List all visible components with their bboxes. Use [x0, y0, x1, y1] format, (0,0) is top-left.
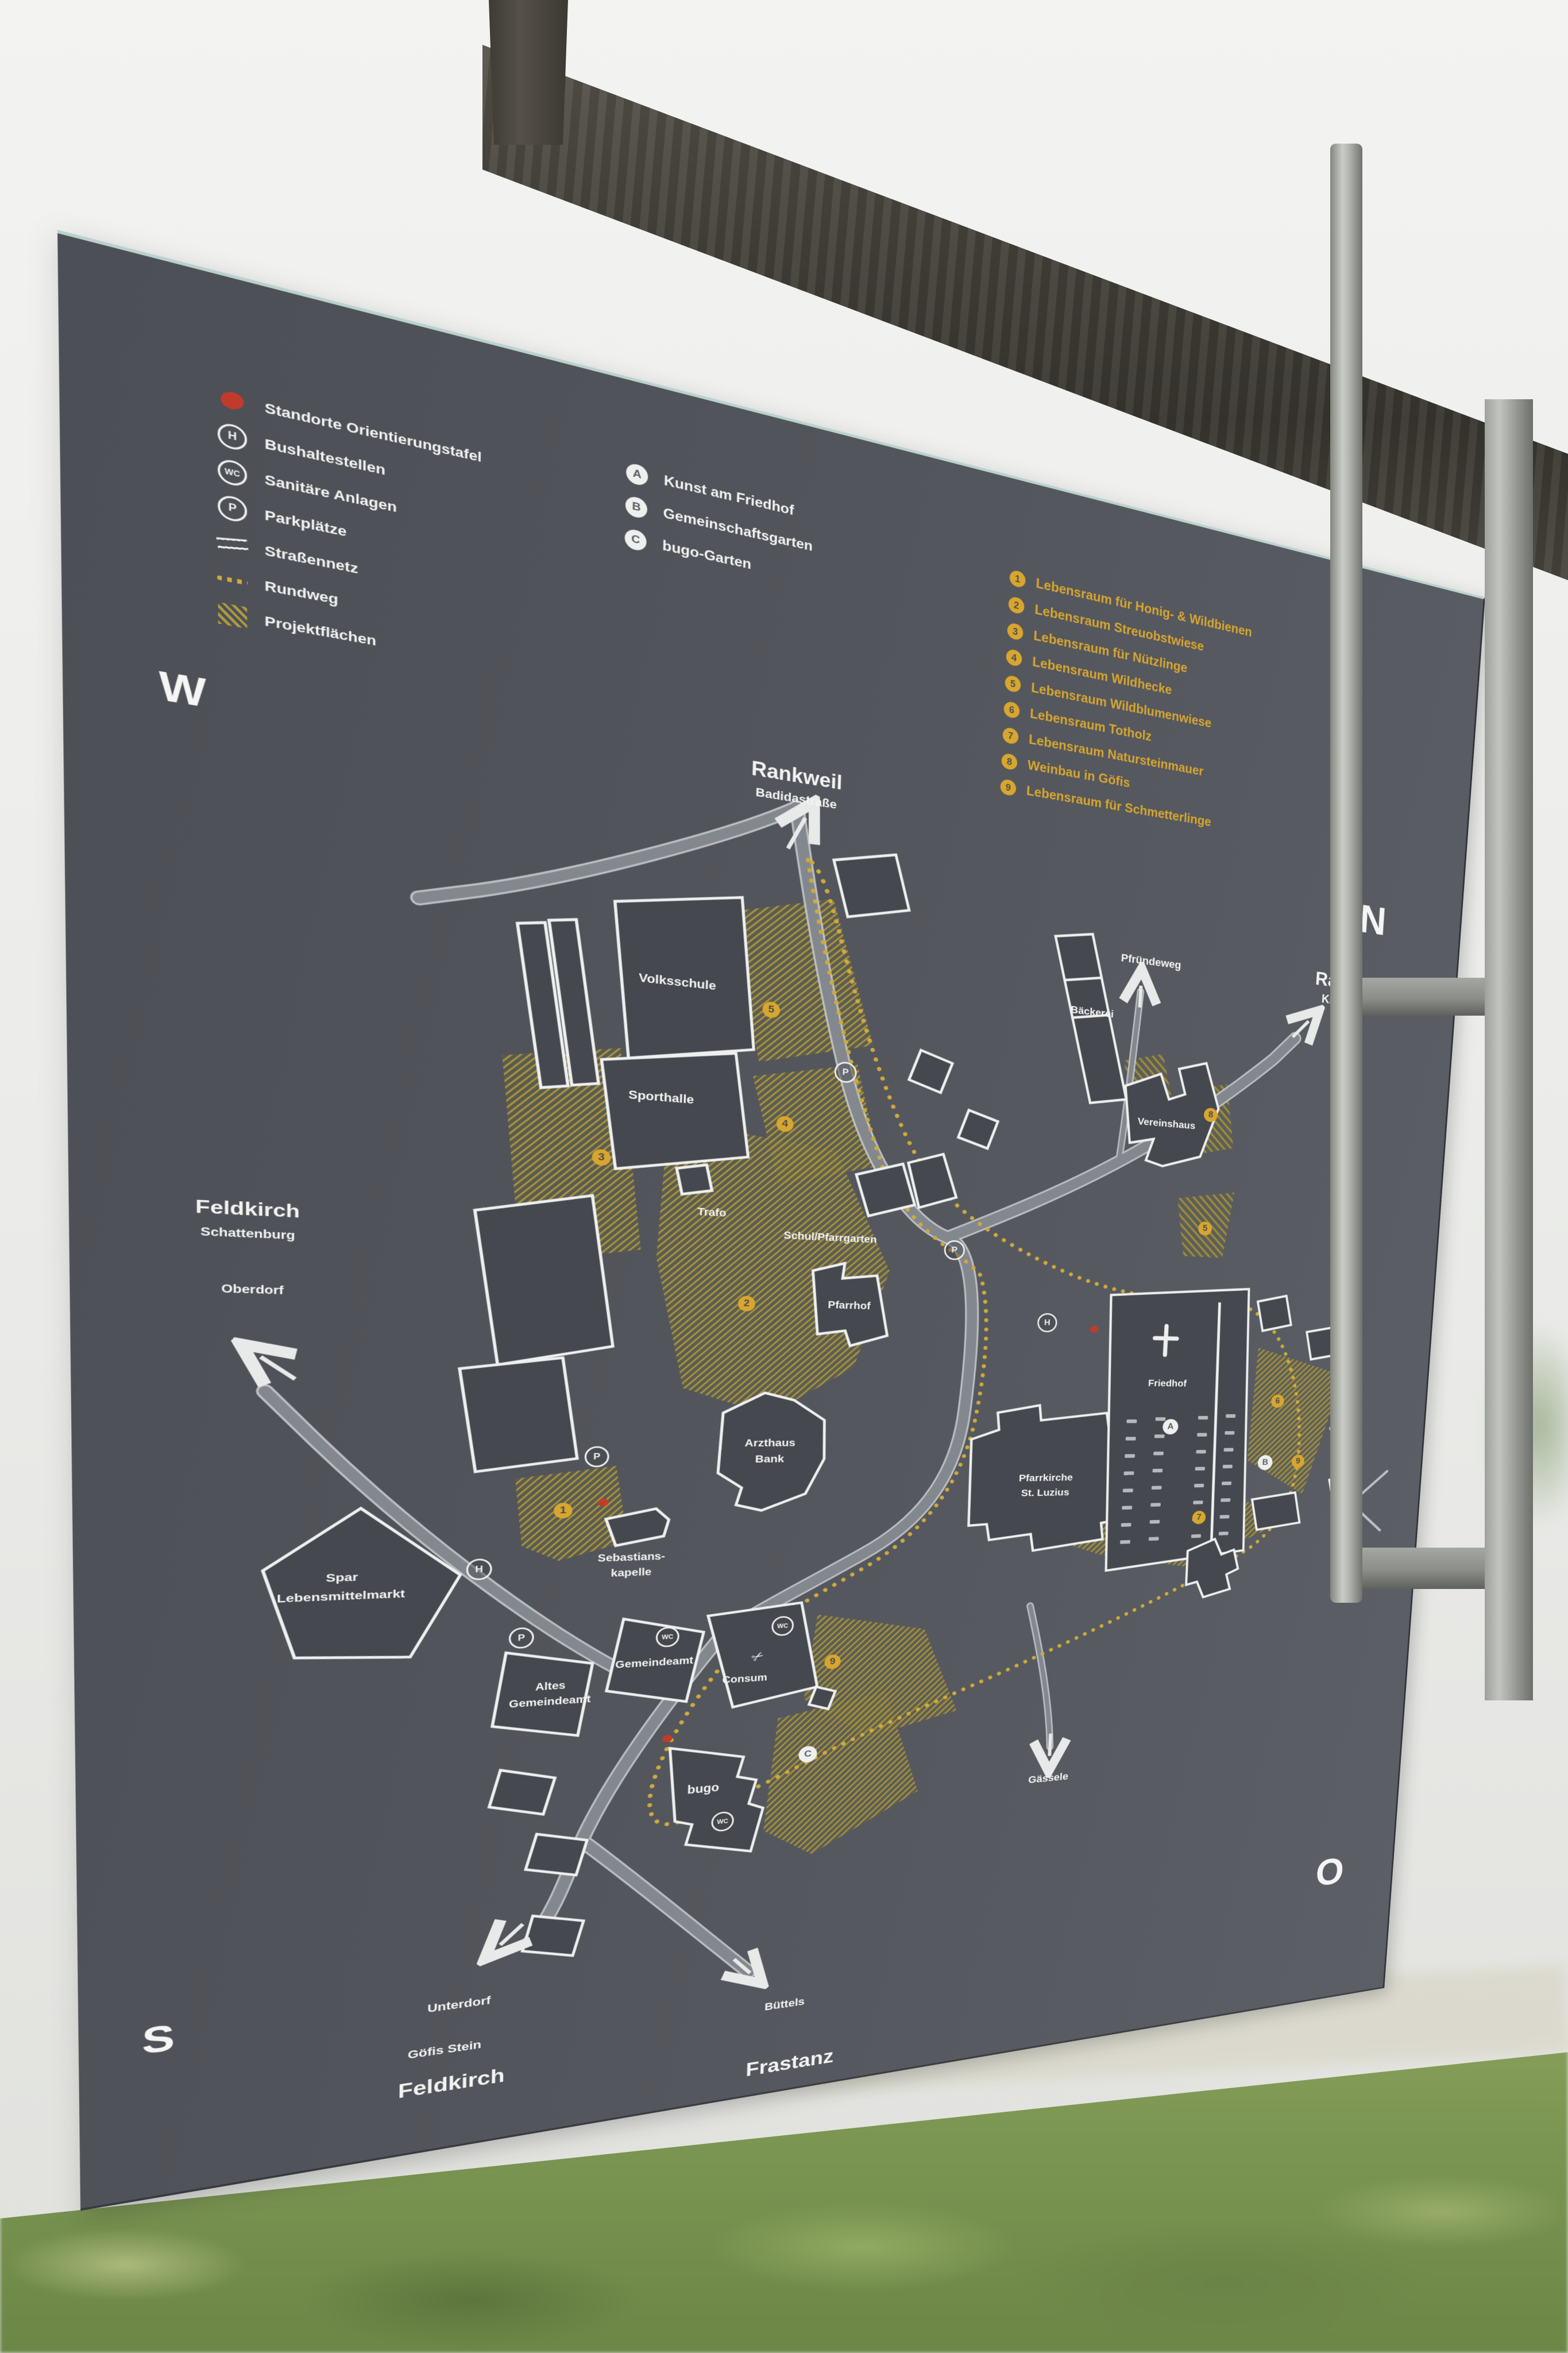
- label-arzthaus: Arzthaus: [744, 1437, 795, 1449]
- project-number-icon: 2: [1008, 596, 1025, 615]
- dest-oberdorf: Oberdorf: [221, 1282, 284, 1297]
- wc-icon: WC: [218, 457, 247, 488]
- label-arzthaus-bank: Bank: [755, 1453, 785, 1465]
- label-spar-1: Spar: [326, 1571, 358, 1586]
- legend-label: Rundweg: [265, 578, 338, 608]
- label-kirche-2: St. Luzius: [1021, 1487, 1069, 1499]
- project-number-icon: 9: [1000, 778, 1016, 797]
- project-number-icon: 6: [1003, 701, 1020, 719]
- arzthaus-building: [717, 1392, 827, 1511]
- location-dot-icon: [218, 392, 246, 410]
- project-number-icon: 7: [1002, 727, 1019, 745]
- frame-flat-bar: [1485, 399, 1533, 1700]
- project-number-icon: 4: [1006, 649, 1022, 668]
- spar-building: [263, 1506, 461, 1665]
- frame-upright: [485, 0, 571, 145]
- label-trafo: Trafo: [697, 1206, 727, 1220]
- compass-south: S: [142, 2016, 175, 2063]
- bus-stop-icon: H: [218, 421, 247, 452]
- bugo-building: [667, 1741, 765, 1860]
- compass-east: O: [1314, 1850, 1345, 1895]
- hatch-icon: [218, 602, 248, 629]
- poi-b-icon: B: [625, 495, 648, 519]
- info-sign-panel: Standorte Orientierungstafel H Bushaltes…: [57, 230, 1485, 2211]
- label-kapelle-2: kapelle: [611, 1566, 651, 1579]
- label-kirche-1: Pfarrkirche: [1019, 1472, 1073, 1484]
- poi-a-icon: A: [626, 462, 648, 487]
- compass-west: W: [159, 662, 206, 717]
- label-pfarrhof: Pfarrhof: [828, 1299, 871, 1312]
- compass-north: N: [1358, 896, 1388, 945]
- label-altes-1: Altes: [535, 1680, 566, 1694]
- project-number-icon: 5: [1005, 674, 1021, 693]
- label-friedhof: Friedhof: [1148, 1378, 1187, 1390]
- trafo-building: [676, 1163, 713, 1195]
- project-number-icon: 1: [1009, 569, 1026, 589]
- label-kapelle-1: Sebastians-: [597, 1550, 665, 1564]
- project-number-icon: 3: [1007, 622, 1024, 641]
- poi-c-icon: C: [624, 528, 647, 553]
- dotted-path-icon: [217, 575, 248, 585]
- road-network: [265, 723, 1427, 2039]
- road-icon: [216, 537, 248, 551]
- parking-icon: P: [218, 493, 247, 524]
- frame-round-pole: [1330, 144, 1362, 1603]
- project-number-icon: 8: [1001, 753, 1017, 771]
